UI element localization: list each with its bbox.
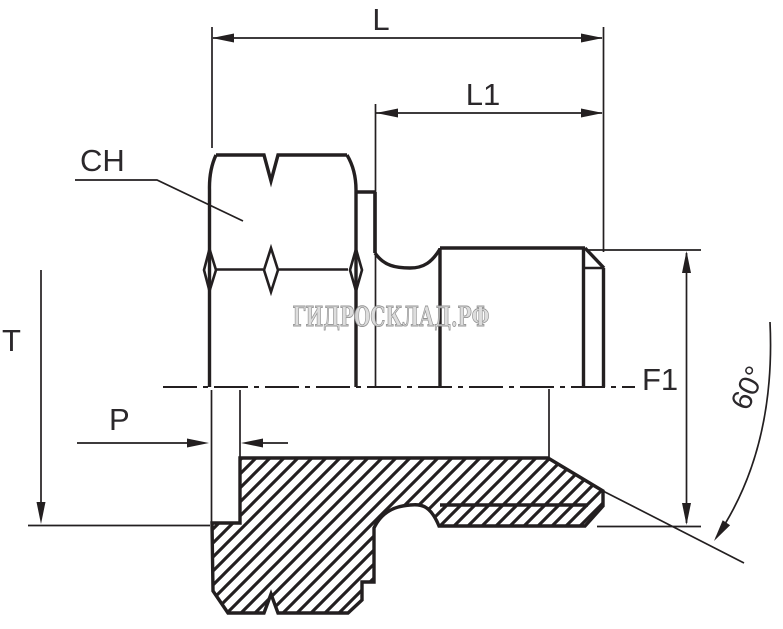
- dim-label-P: P: [109, 402, 130, 437]
- angle-arc: [716, 322, 771, 538]
- thread-relief-groove: [375, 249, 440, 268]
- hex-chamfer-diamond-center: [264, 248, 278, 292]
- dim-thread-length: L1: [376, 77, 604, 387]
- fitting-technical-drawing: L L1 CH T P F1: [0, 0, 783, 629]
- drawing-canvas: L L1 CH T P F1: [0, 0, 783, 629]
- watermark-text: ГИДРОСКЛАД.РФ: [293, 302, 490, 333]
- dim-overall-length: L: [212, 2, 604, 252]
- section-hatch: [212, 458, 603, 613]
- dim-label-CH: CH: [80, 143, 125, 178]
- washer-flange: [356, 192, 375, 253]
- hex-head-outline: [204, 155, 362, 387]
- dim-label-F1: F1: [642, 362, 678, 397]
- dim-tube-thread: T: [2, 270, 210, 526]
- dim-label-L1: L1: [466, 77, 500, 112]
- dim-label-T: T: [2, 323, 21, 358]
- dim-label-L: L: [372, 2, 389, 37]
- dim-depth: P: [77, 402, 288, 448]
